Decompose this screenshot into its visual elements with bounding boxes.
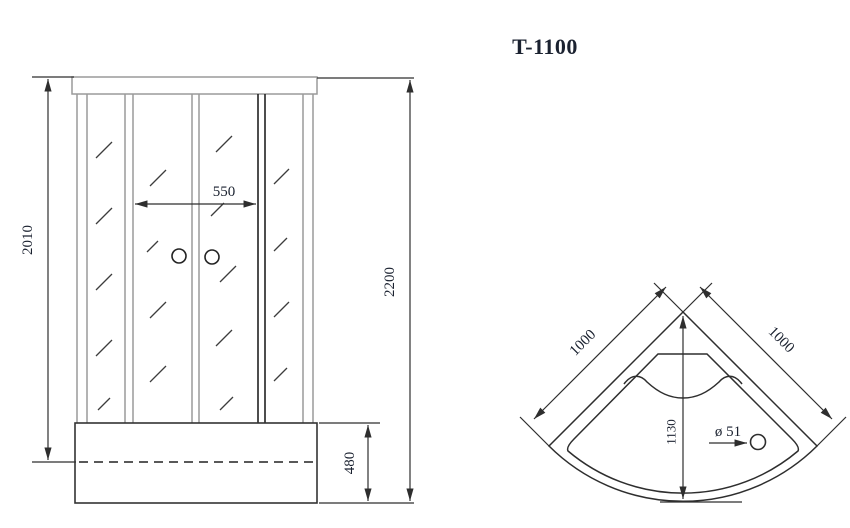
extension-line: [654, 283, 683, 312]
top-view-dimension-labels: 1000 1000 1130 ø 51: [567, 324, 798, 445]
door-handle-right: [205, 250, 219, 264]
drain-hole: [751, 435, 766, 450]
dim-total-height: 2200: [382, 267, 398, 297]
dimension-line-side-right: [700, 287, 832, 419]
extension-line: [683, 283, 712, 312]
dimension-line-side-left: [534, 287, 666, 419]
dim-drain-diameter: ø 51: [715, 424, 741, 440]
cabin-frame: [72, 77, 317, 423]
extension-line: [520, 417, 549, 446]
door-handle-left: [172, 249, 186, 263]
dim-depth: 1130: [664, 419, 679, 445]
extension-line: [817, 417, 846, 446]
drawing-sheet: T-1100: [0, 0, 850, 528]
technical-drawing: 2010 550 2200 480: [0, 0, 850, 528]
door-edge: [258, 94, 265, 423]
cabin-cap: [72, 77, 317, 94]
dim-tray-height: 480: [342, 452, 358, 475]
dim-side-left: 1000: [567, 327, 600, 360]
top-view-drawing: 1000 1000 1130 ø 51: [520, 283, 846, 502]
cabin-base: [75, 423, 317, 503]
dim-door-width: 550: [213, 184, 236, 200]
frame-posts: [77, 94, 313, 423]
dim-side-right: 1000: [765, 324, 798, 357]
top-view-dimensions: [520, 283, 846, 502]
model-title: T-1100: [0, 34, 850, 60]
front-view-drawing: 2010 550 2200 480: [20, 77, 414, 503]
dim-cabin-height: 2010: [20, 225, 36, 255]
